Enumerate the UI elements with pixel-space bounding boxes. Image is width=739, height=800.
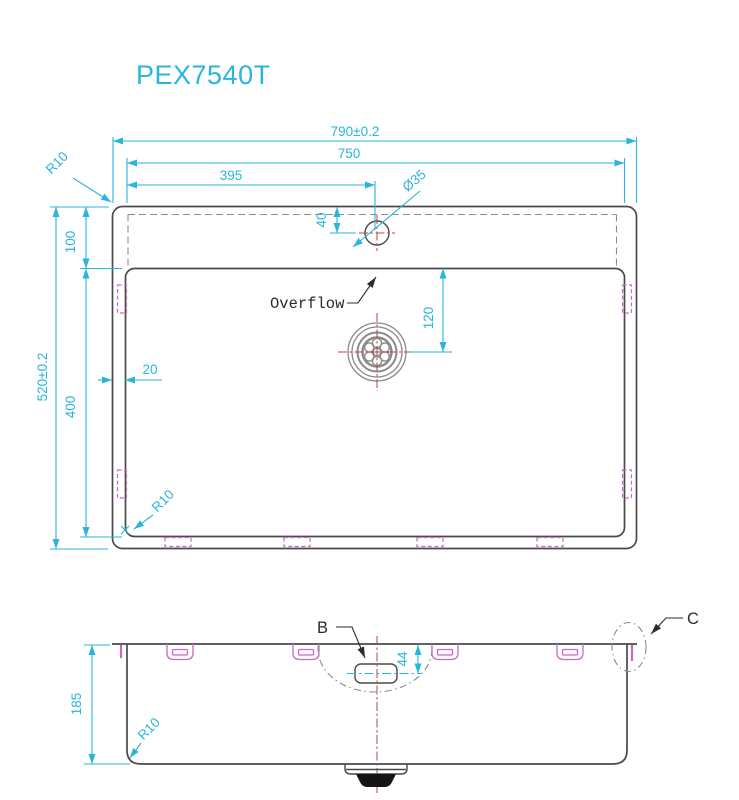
dim-drain-offset: 120: [421, 307, 436, 330]
clip-slot: [173, 650, 188, 656]
clip-bottom: [165, 538, 191, 547]
ext-lines-height: [84, 645, 130, 764]
technical-drawing: PEX7540T: [0, 0, 739, 800]
dim-inner-width: 750: [338, 146, 361, 161]
front-view: 185 44 R10 B C: [69, 606, 699, 793]
drain-hole: [365, 343, 374, 352]
clip-bottom: [537, 538, 563, 547]
clip-slot: [563, 650, 578, 656]
overflow-label: Overflow: [270, 295, 345, 313]
drain-cap: [345, 765, 407, 788]
dim-height: 185: [69, 693, 84, 716]
leader-outer-corner-radius: [73, 178, 111, 202]
dim-front-corner-radius: R10: [135, 715, 163, 743]
clip: [293, 644, 319, 660]
mounting-clips-plan: [118, 285, 632, 547]
clip-bottom: [417, 538, 443, 547]
detail-c-label: C: [687, 610, 699, 628]
drain-hole: [380, 343, 389, 352]
clip: [557, 644, 583, 660]
drain-centerlines: [338, 313, 416, 391]
drain-strainer: [338, 313, 416, 391]
clip-slot: [299, 650, 314, 656]
dim-faucet-offset: 40: [314, 212, 329, 227]
detail-c-boundary: [612, 623, 646, 672]
bowl-outline: [126, 269, 625, 537]
leader-faucet-diameter: [353, 191, 420, 247]
clip: [167, 644, 193, 660]
clip-slot: [438, 650, 453, 656]
leader-front-corner-radius: [130, 743, 141, 758]
leader-bowl-corner-radius: [134, 515, 153, 529]
drawing-sheet: PEX7540T: [0, 0, 739, 800]
plan-view: 790±0.2 750 395 40 Ø35 100 400 520±0.2 2…: [35, 124, 637, 549]
drawing-title: PEX7540T: [136, 60, 271, 90]
dim-overall-depth: 520±0.2: [35, 353, 50, 402]
overflow-leader: [347, 277, 376, 303]
dim-overflow-offset: 44: [395, 651, 410, 667]
dim-faucet-center: 395: [220, 168, 243, 183]
clip-bottom: [284, 538, 310, 547]
drain-cap-base: [356, 774, 396, 787]
dim-ledge-depth: 100: [63, 231, 78, 254]
mounting-clips-front: [167, 644, 583, 660]
drain-hole: [365, 352, 374, 361]
dim-overall-width: 790±0.2: [331, 124, 380, 139]
clip: [432, 644, 458, 660]
detail-b-boundary: [318, 606, 432, 692]
dim-bowl-corner-radius: R10: [149, 487, 177, 515]
detail-b-leader: [336, 627, 365, 658]
ext-lines-overall-depth: [50, 207, 109, 549]
ext-lines-inner-width: [127, 158, 625, 203]
detail-b-label: B: [317, 619, 328, 637]
detail-c-leader: [651, 618, 683, 634]
dim-faucet-diameter: Ø35: [400, 167, 429, 195]
dim-outer-corner-radius: R10: [43, 149, 71, 177]
dim-bowl-depth: 400: [63, 396, 78, 419]
dim-side-gap: 20: [142, 362, 157, 377]
